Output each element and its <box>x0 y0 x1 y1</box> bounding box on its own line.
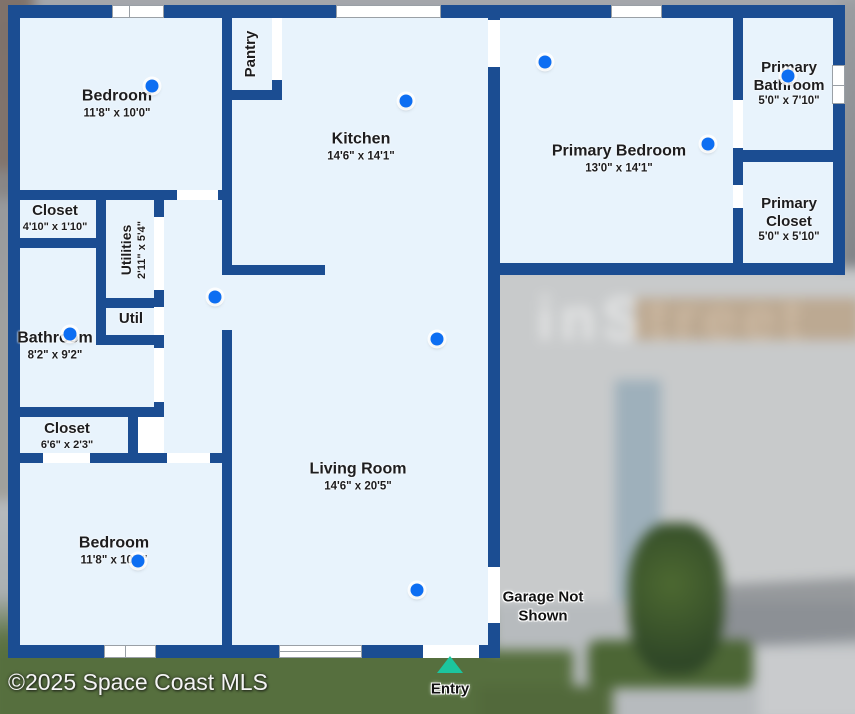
camera-dot[interactable] <box>132 555 145 568</box>
wall <box>222 5 232 270</box>
door-opening <box>733 185 743 208</box>
bg-lawn-patch <box>478 686 613 714</box>
wall <box>222 330 232 645</box>
camera-dot[interactable] <box>411 584 424 597</box>
door-opening <box>167 453 210 463</box>
window <box>611 5 662 18</box>
wall <box>96 192 106 345</box>
wall <box>222 265 325 275</box>
door-opening <box>177 190 218 200</box>
camera-dot[interactable] <box>782 70 795 83</box>
wall <box>222 90 282 100</box>
window <box>336 5 441 18</box>
camera-dot[interactable] <box>539 56 552 69</box>
garage-note: Garage Not Shown <box>503 588 584 626</box>
room-label-pantry: Pantry <box>242 31 260 78</box>
room-label-closet-bottom: Closet 6'6" x 2'3" <box>41 420 93 452</box>
floorplan-screenshot: inStreet <box>0 0 855 714</box>
camera-dot[interactable] <box>702 138 715 151</box>
room-label-living-room: Living Room 14'6" x 20'5" <box>310 460 407 493</box>
room-label-kitchen: Kitchen 14'6" x 14'1" <box>327 130 395 163</box>
wall <box>733 150 845 162</box>
room-label-util: Util <box>119 310 143 328</box>
entry-label: Entry <box>431 681 469 700</box>
wall <box>488 5 500 658</box>
room-label-primary-bathroom: Primary Bathroom 5'0" x 7'10" <box>743 59 835 109</box>
door-opening <box>154 307 164 335</box>
bg-watermark-tint <box>635 298 855 340</box>
wall <box>488 263 845 275</box>
camera-dot[interactable] <box>431 333 444 346</box>
door-opening <box>154 348 164 402</box>
room-label-closet-top: Closet 4'10" x 1'10" <box>23 202 88 234</box>
door-opening <box>43 453 90 463</box>
copyright-watermark: ©2025 Space Coast MLS <box>8 669 268 696</box>
camera-dot[interactable] <box>146 80 159 93</box>
room-label-bedroom-top: Bedroom 11'8" x 10'0" <box>82 87 152 120</box>
room-label-primary-closet: Primary Closet 5'0" x 5'10" <box>743 195 835 245</box>
entry-marker-icon[interactable] <box>437 656 463 673</box>
wall <box>96 335 164 345</box>
window <box>104 645 156 658</box>
camera-dot[interactable] <box>209 291 222 304</box>
wall <box>8 407 164 417</box>
camera-dot[interactable] <box>64 328 77 341</box>
door-opening <box>138 417 164 453</box>
room-label-bathroom: Bathroom 8'2" x 9'2" <box>17 329 93 362</box>
camera-dot[interactable] <box>400 95 413 108</box>
door-opening <box>488 20 500 67</box>
door-opening <box>733 100 743 148</box>
wall <box>8 238 106 248</box>
room-label-primary-bedroom: Primary Bedroom 13'0" x 14'1" <box>552 142 686 175</box>
door-opening <box>272 18 282 80</box>
window <box>112 5 164 18</box>
bg-walkway <box>758 648 855 714</box>
room-label-utilities: Utilities 2'11" x 5'4" <box>118 221 148 279</box>
bg-bush <box>628 523 724 675</box>
door-opening <box>154 217 164 290</box>
door-opening <box>488 567 500 623</box>
window <box>279 645 362 658</box>
